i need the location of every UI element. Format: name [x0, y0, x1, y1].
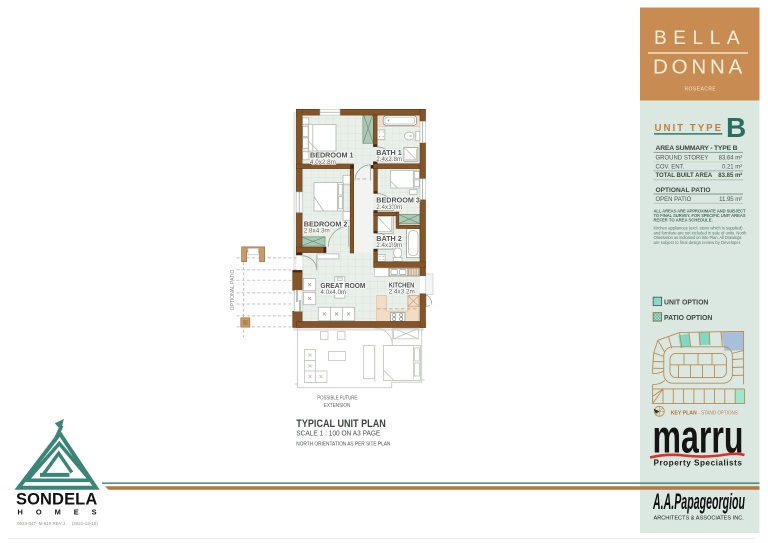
svg-text:are subject to final design re: are subject to final design review by De… — [654, 240, 742, 245]
svg-text:DONNA: DONNA — [653, 56, 746, 79]
svg-text:83.85 m²: 83.85 m² — [718, 172, 742, 179]
svg-text:EXTENSION: EXTENSION — [324, 403, 351, 409]
svg-text:SONDELA: SONDELA — [16, 490, 97, 508]
svg-text:0533-047- M 610 REV J: 0533-047- M 610 REV J — [17, 521, 65, 526]
svg-text:4.0x4.0m: 4.0x4.0m — [320, 289, 346, 296]
svg-text:GROUND STOREY: GROUND STOREY — [656, 156, 709, 162]
svg-text:ARCHITECTS & ASSOCIATES INC.: ARCHITECTS & ASSOCIATES INC. — [654, 516, 745, 522]
svg-text:POSSIBLE FUTURE: POSSIBLE FUTURE — [317, 396, 357, 402]
svg-text:11.95 m²: 11.95 m² — [719, 197, 742, 203]
svg-text:A.A.Papageorgiou: A.A.Papageorgiou — [653, 489, 746, 514]
svg-text:OPTIONAL PATIO: OPTIONAL PATIO — [230, 270, 236, 311]
svg-text:2.8x4.3m: 2.8x4.3m — [304, 227, 330, 234]
svg-text:2.4x1.9m: 2.4x1.9m — [376, 242, 402, 249]
svg-text:AREA SUMMARY - TYPE B: AREA SUMMARY - TYPE B — [656, 145, 738, 152]
svg-text:2.4x3.0m: 2.4x3.0m — [376, 204, 402, 211]
svg-text:Property Specialists: Property Specialists — [654, 459, 744, 468]
svg-text:0.21 m²: 0.21 m² — [722, 165, 742, 171]
svg-text:COV. ENT.: COV. ENT. — [656, 165, 685, 171]
svg-text:NORTH ORIENTATION AS PER SITE: NORTH ORIENTATION AS PER SITE PLAN — [296, 441, 390, 447]
svg-text:HOMES: HOMES — [18, 507, 110, 516]
svg-text:TOTAL BUILT AREA: TOTAL BUILT AREA — [656, 173, 713, 179]
svg-text:4.0x2.8m: 4.0x2.8m — [310, 159, 336, 166]
svg-text:ROSEACRE: ROSEACRE — [685, 87, 717, 93]
svg-text:83.64 m²: 83.64 m² — [719, 156, 743, 162]
svg-text:SCALE 1 : 100 ON A3 PAGE: SCALE 1 : 100 ON A3 PAGE — [296, 429, 380, 438]
svg-text:2.4x3.2m: 2.4x3.2m — [389, 289, 415, 296]
svg-text:REFER TO AREA SCHEDULE.: REFER TO AREA SCHEDULE. — [654, 218, 713, 223]
svg-text:UNIT TYPE: UNIT TYPE — [655, 123, 724, 134]
svg-text:BELLA: BELLA — [654, 28, 746, 49]
svg-text:OPEN PATIO: OPEN PATIO — [656, 197, 692, 203]
svg-text:UNIT OPTION: UNIT OPTION — [664, 299, 708, 306]
svg-text:OPTIONAL PATIO: OPTIONAL PATIO — [656, 187, 711, 194]
svg-text:B: B — [726, 112, 746, 143]
svg-text:PATIO OPTION: PATIO OPTION — [664, 315, 712, 322]
svg-text:(2021-12-10): (2021-12-10) — [72, 521, 99, 526]
svg-text:2.4x2.8m: 2.4x2.8m — [376, 156, 402, 163]
